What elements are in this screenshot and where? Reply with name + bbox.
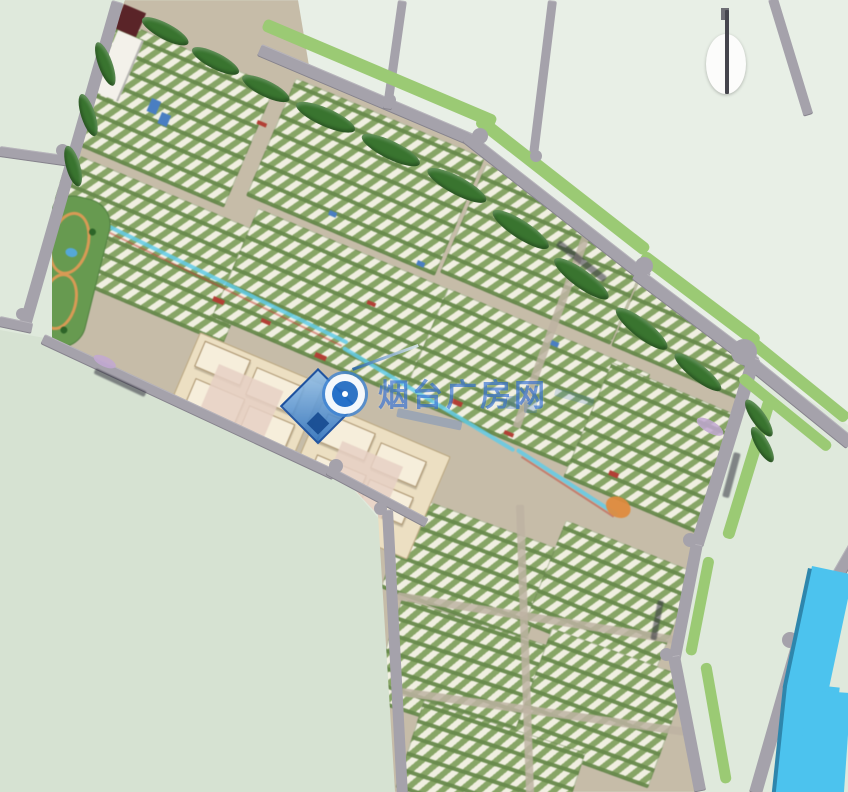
logo-lens-dot — [342, 391, 348, 397]
road-junction — [329, 459, 343, 473]
north-arrow-needle — [725, 10, 729, 94]
site-plan-map: 烟台广房网 — [0, 0, 848, 792]
watermark-ghost-mark — [506, 396, 519, 409]
park-tree — [88, 228, 96, 236]
road-junction — [374, 502, 387, 515]
road-junction — [384, 94, 396, 106]
watermark-ghost-mark — [554, 388, 595, 406]
river — [799, 690, 848, 792]
compass — [704, 4, 750, 100]
road-junction — [472, 128, 488, 144]
road-junction — [731, 339, 757, 365]
road-junction — [16, 308, 28, 320]
road-junction — [660, 648, 673, 661]
road-junction — [635, 257, 653, 275]
green-verge — [700, 662, 732, 784]
park-tree — [60, 326, 68, 334]
watermark-ghost-mark — [524, 400, 537, 413]
road-junction — [683, 533, 697, 547]
watermark: 烟台广房网 — [305, 350, 605, 432]
road-junction — [530, 150, 542, 162]
